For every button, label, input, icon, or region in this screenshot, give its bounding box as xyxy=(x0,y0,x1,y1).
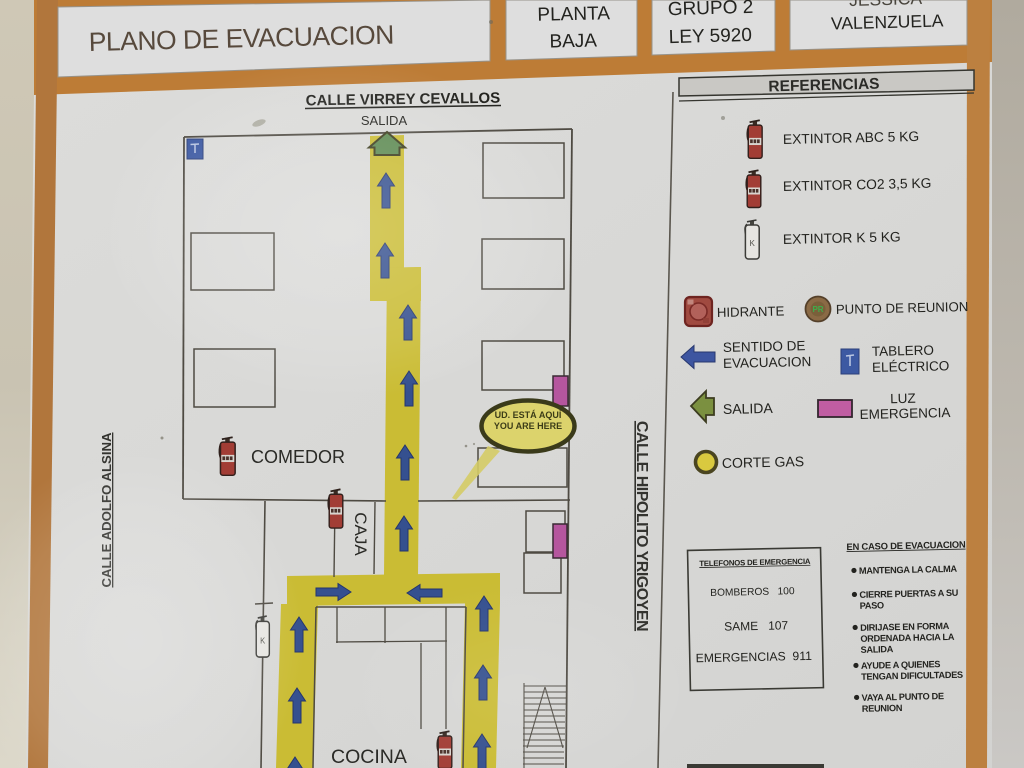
svg-text:CALLE HIPOLITO YRIGOYEN: CALLE HIPOLITO YRIGOYEN xyxy=(633,421,650,631)
svg-text:REFERENCIAS: REFERENCIAS xyxy=(768,76,880,96)
svg-text:PR: PR xyxy=(812,305,823,314)
svg-text:BAJA: BAJA xyxy=(549,31,597,53)
svg-text:COMEDOR: COMEDOR xyxy=(251,447,345,467)
svg-text:SAME 107: SAME 107 xyxy=(724,618,789,633)
svg-text:SALIDA: SALIDA xyxy=(861,644,894,655)
svg-text:CAJA: CAJA xyxy=(351,512,370,556)
svg-text:EXTINTOR ABC 5 KG: EXTINTOR ABC 5 KG xyxy=(783,129,920,147)
svg-text:CIERRE PUERTAS A SU: CIERRE PUERTAS A SU xyxy=(859,588,958,600)
svg-text:PUNTO DE REUNION: PUNTO DE REUNION xyxy=(836,299,969,317)
svg-text:ORDENADA HACIA LA: ORDENADA HACIA LA xyxy=(860,632,955,644)
svg-text:ELÉCTRICO: ELÉCTRICO xyxy=(872,358,950,375)
svg-text:EXTINTOR K 5 KG: EXTINTOR K 5 KG xyxy=(783,229,901,247)
svg-text:PLANTA: PLANTA xyxy=(537,3,610,26)
svg-text:PASO: PASO xyxy=(860,600,885,611)
svg-text:TABLERO: TABLERO xyxy=(872,343,934,359)
svg-text:VALENZUELA: VALENZUELA xyxy=(831,10,944,33)
svg-text:LUZ: LUZ xyxy=(890,391,916,407)
svg-text:CORTE GAS: CORTE GAS xyxy=(722,453,805,471)
svg-text:EMERGENCIAS 911: EMERGENCIAS 911 xyxy=(696,649,813,665)
svg-text:YOU ARE HERE: YOU ARE HERE xyxy=(494,421,562,431)
svg-text:SALIDA: SALIDA xyxy=(723,400,774,417)
svg-text:EVACUACION: EVACUACION xyxy=(723,354,812,371)
svg-text:DIRIJASE EN FORMA: DIRIJASE EN FORMA xyxy=(860,621,950,633)
svg-text:EMERGENCIA: EMERGENCIA xyxy=(860,405,951,422)
svg-text:AYUDE A QUIENES: AYUDE A QUIENES xyxy=(861,659,941,671)
svg-text:UD. ESTÁ AQUÍ: UD. ESTÁ AQUÍ xyxy=(495,410,562,420)
svg-text:BOMBEROS 100: BOMBEROS 100 xyxy=(710,586,795,599)
svg-text:MANTENGA LA CALMA: MANTENGA LA CALMA xyxy=(859,564,958,576)
svg-text:LEY 5920: LEY 5920 xyxy=(668,25,752,48)
svg-text:GRUPO 2: GRUPO 2 xyxy=(667,0,753,20)
svg-text:VAYA AL PUNTO DE: VAYA AL PUNTO DE xyxy=(862,691,945,703)
svg-text:SENTIDO DE: SENTIDO DE xyxy=(723,338,806,355)
svg-text:HIDRANTE: HIDRANTE xyxy=(717,303,785,320)
svg-text:REUNION: REUNION xyxy=(862,703,903,714)
svg-text:TENGAN DIFICULTADES: TENGAN DIFICULTADES xyxy=(861,670,963,682)
